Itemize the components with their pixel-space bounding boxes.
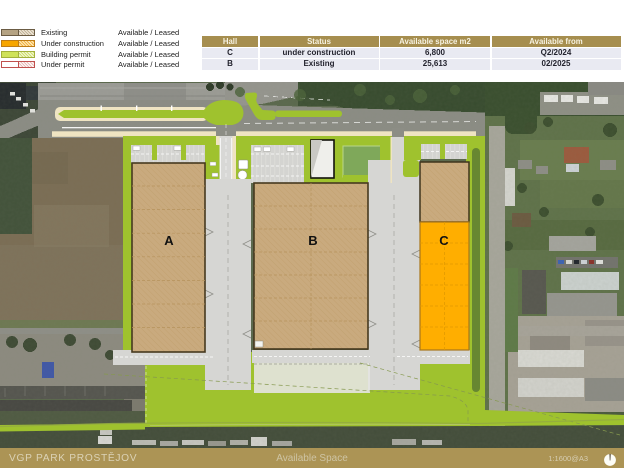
svg-text:B: B: [308, 233, 317, 248]
svg-text:C: C: [439, 233, 449, 248]
svg-text:A: A: [164, 233, 174, 248]
